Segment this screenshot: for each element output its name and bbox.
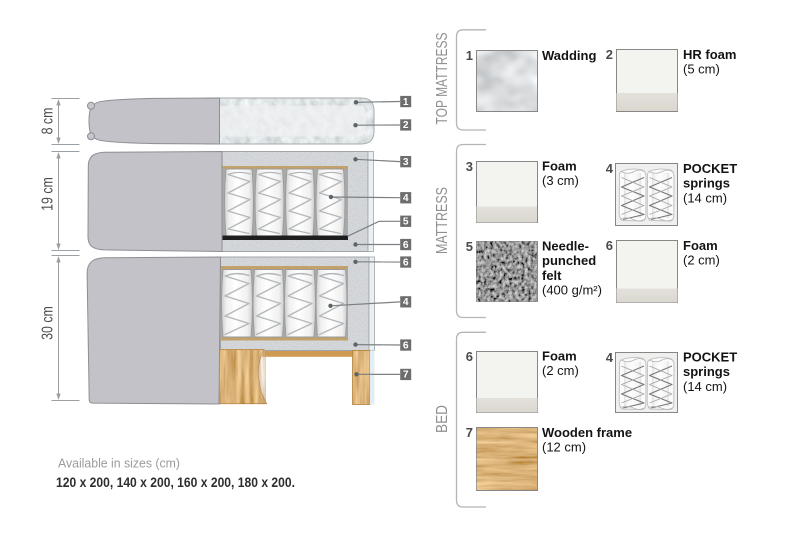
svg-text:2: 2 <box>403 120 409 131</box>
svg-text:springs: springs <box>683 176 730 191</box>
svg-text:6: 6 <box>606 238 613 253</box>
svg-text:6: 6 <box>403 240 409 251</box>
svg-text:7: 7 <box>466 425 473 440</box>
svg-text:6: 6 <box>403 340 409 351</box>
svg-text:punched: punched <box>542 253 596 268</box>
svg-text:1: 1 <box>466 48 473 63</box>
svg-text:MATTRESS: MATTRESS <box>434 187 451 254</box>
svg-text:5: 5 <box>466 239 473 254</box>
svg-text:BED: BED <box>434 405 451 433</box>
svg-text:POCKET: POCKET <box>683 349 737 364</box>
svg-text:(2 cm): (2 cm) <box>542 363 579 378</box>
svg-text:(400 g/m²): (400 g/m²) <box>542 283 602 298</box>
svg-text:Foam: Foam <box>542 348 577 363</box>
svg-text:3: 3 <box>466 159 473 174</box>
svg-text:1: 1 <box>403 97 409 108</box>
svg-text:(2 cm): (2 cm) <box>683 253 720 268</box>
svg-text:(14 cm): (14 cm) <box>683 190 727 205</box>
svg-text:5: 5 <box>403 217 409 228</box>
svg-text:4: 4 <box>606 161 614 176</box>
svg-text:(5 cm): (5 cm) <box>683 62 720 77</box>
svg-text:HR foam: HR foam <box>683 47 736 62</box>
svg-text:30 cm: 30 cm <box>38 306 56 340</box>
svg-text:Available in sizes (cm): Available in sizes (cm) <box>58 456 180 471</box>
svg-text:Foam: Foam <box>683 238 718 253</box>
svg-text:2: 2 <box>606 47 613 62</box>
svg-text:(14 cm): (14 cm) <box>683 379 727 394</box>
svg-text:springs: springs <box>683 364 730 379</box>
svg-text:4: 4 <box>606 350 614 365</box>
svg-text:19 cm: 19 cm <box>38 177 56 211</box>
svg-text:6: 6 <box>403 257 409 268</box>
svg-text:Wadding: Wadding <box>542 48 596 63</box>
svg-text:POCKET: POCKET <box>683 161 737 176</box>
svg-text:(3 cm): (3 cm) <box>542 173 579 188</box>
svg-text:(12 cm): (12 cm) <box>542 440 586 455</box>
svg-text:7: 7 <box>403 370 409 381</box>
svg-text:felt: felt <box>542 268 562 283</box>
svg-text:TOP MATTRESS: TOP MATTRESS <box>434 33 451 125</box>
svg-text:Wooden frame: Wooden frame <box>542 425 632 440</box>
svg-text:3: 3 <box>403 157 409 168</box>
svg-text:Foam: Foam <box>542 158 577 173</box>
svg-text:6: 6 <box>466 349 473 364</box>
svg-text:120 x 200, 140 x 200, 160 x 20: 120 x 200, 140 x 200, 160 x 200, 180 x 2… <box>56 474 295 490</box>
svg-text:4: 4 <box>403 193 409 204</box>
svg-text:8 cm: 8 cm <box>38 108 56 135</box>
svg-text:4: 4 <box>403 297 409 308</box>
svg-text:Needle-: Needle- <box>542 238 589 253</box>
